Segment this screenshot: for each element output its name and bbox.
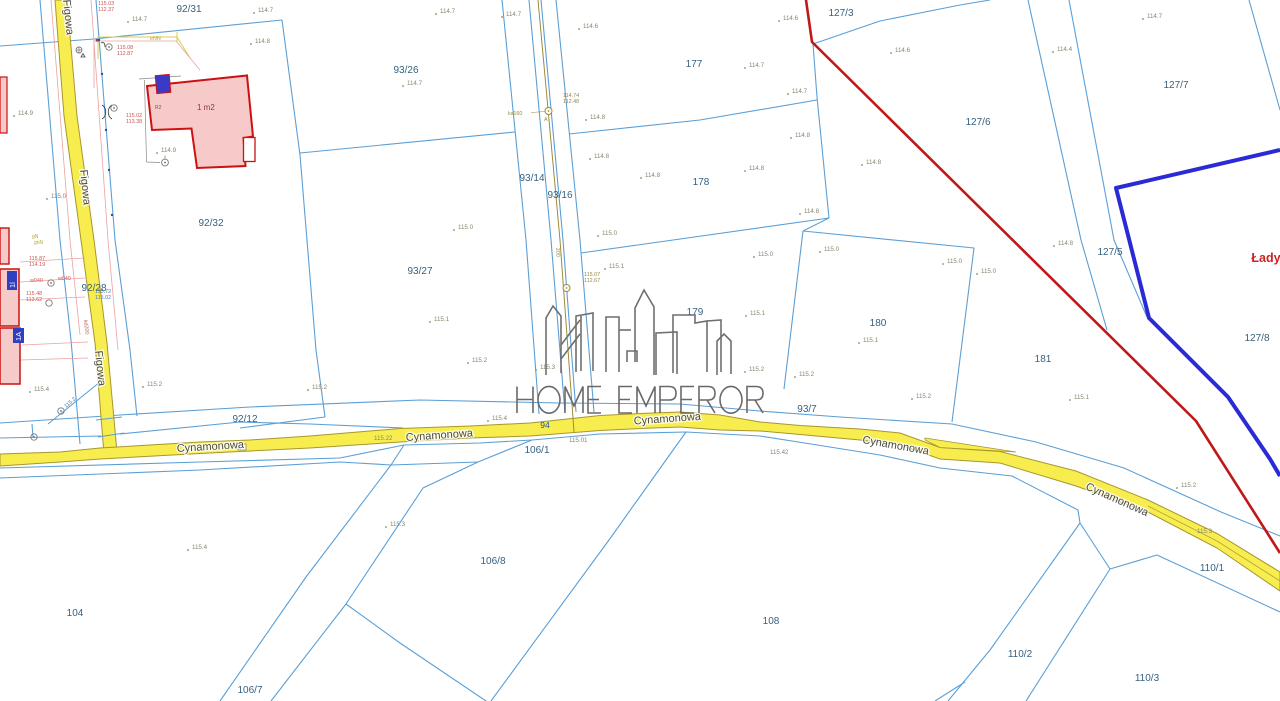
svg-text:Łady: Łady (1251, 251, 1280, 265)
svg-text:114.19: 114.19 (29, 262, 45, 268)
svg-text:110/3: 110/3 (1135, 673, 1160, 684)
svg-text:115.2: 115.2 (1181, 482, 1197, 489)
svg-text:115.0: 115.0 (51, 193, 67, 200)
svg-text:115.0: 115.0 (758, 251, 774, 258)
svg-text:177: 177 (686, 59, 703, 70)
svg-text:114.8: 114.8 (866, 159, 882, 166)
svg-text:114.8: 114.8 (749, 165, 765, 172)
svg-text:93/16: 93/16 (547, 190, 572, 201)
svg-text:115.3: 115.3 (540, 364, 556, 371)
svg-text:115.1: 115.1 (434, 316, 450, 323)
svg-text:115.3: 115.3 (390, 521, 406, 528)
svg-text:104: 104 (67, 608, 84, 619)
svg-text:114.8: 114.8 (1058, 240, 1074, 247)
svg-text:115.42: 115.42 (770, 449, 789, 456)
svg-text:115.22: 115.22 (374, 435, 393, 442)
svg-text:114.9: 114.9 (161, 147, 177, 154)
svg-text:114.7: 114.7 (792, 88, 808, 95)
svg-text:114.6: 114.6 (783, 15, 799, 22)
svg-text:114.8: 114.8 (645, 172, 661, 179)
svg-text:127/3: 127/3 (828, 8, 853, 19)
svg-text:127/8: 127/8 (1244, 333, 1269, 344)
svg-text:114.4: 114.4 (1057, 46, 1073, 53)
svg-text:114.7: 114.7 (440, 8, 456, 15)
svg-text:112.87: 112.87 (117, 51, 133, 57)
svg-text:114.8: 114.8 (590, 114, 606, 121)
svg-text:178: 178 (693, 177, 710, 188)
svg-text:115.3: 115.3 (1197, 528, 1213, 535)
svg-text:106/8: 106/8 (480, 556, 505, 567)
svg-text:115.4: 115.4 (492, 415, 508, 422)
svg-text:115.02: 115.02 (95, 295, 111, 301)
svg-text:115.2: 115.2 (916, 393, 932, 400)
svg-text:115.4: 115.4 (192, 544, 208, 551)
svg-text:127/5: 127/5 (1097, 247, 1122, 258)
svg-text:1l: 1l (8, 282, 17, 288)
svg-text:1 m2: 1 m2 (197, 103, 215, 112)
svg-text:115.0: 115.0 (981, 268, 997, 275)
svg-text:w040: w040 (57, 276, 71, 282)
svg-text:115.4: 115.4 (34, 386, 50, 393)
svg-text:114.7: 114.7 (258, 7, 274, 14)
svg-text:113.62: 113.62 (26, 297, 42, 303)
svg-text:108: 108 (763, 616, 780, 627)
svg-text:115.1: 115.1 (750, 310, 766, 317)
svg-text:181: 181 (1035, 354, 1052, 365)
svg-text:115.0: 115.0 (824, 246, 840, 253)
svg-text:114.8: 114.8 (795, 132, 811, 139)
svg-text:114.7: 114.7 (749, 62, 765, 69)
svg-text:112.67: 112.67 (584, 278, 600, 284)
svg-text:94: 94 (540, 420, 550, 430)
svg-text:93/14: 93/14 (519, 173, 544, 184)
svg-text:93/27: 93/27 (407, 266, 432, 277)
svg-text:93/7: 93/7 (797, 404, 817, 415)
svg-text:114.7: 114.7 (407, 80, 423, 87)
svg-text:106/7: 106/7 (237, 685, 262, 696)
svg-text:ks160: ks160 (508, 111, 522, 117)
svg-text:115.1: 115.1 (1074, 394, 1090, 401)
svg-text:eNN: eNN (150, 36, 161, 42)
svg-text:114.7: 114.7 (132, 16, 148, 23)
svg-text:114.7: 114.7 (506, 11, 522, 18)
svg-text:113.38: 113.38 (126, 119, 142, 125)
svg-text:R2: R2 (155, 105, 162, 111)
svg-text:w040: w040 (29, 278, 43, 284)
svg-text:115.2: 115.2 (312, 384, 328, 391)
svg-text:115.1: 115.1 (609, 263, 625, 270)
svg-text:114.6: 114.6 (583, 23, 599, 30)
svg-text:200: 200 (554, 248, 561, 257)
svg-text:112.48: 112.48 (563, 99, 579, 105)
svg-text:92/31: 92/31 (176, 4, 201, 15)
svg-text:115.1: 115.1 (863, 337, 879, 344)
svg-text:114.9: 114.9 (18, 110, 34, 117)
svg-text:gnN: gnN (34, 240, 44, 246)
svg-text:180: 180 (870, 318, 887, 329)
svg-text:A: A (544, 117, 548, 123)
svg-text:115.0: 115.0 (947, 258, 963, 265)
svg-text:127/6: 127/6 (965, 117, 990, 128)
svg-text:92/12: 92/12 (232, 414, 257, 425)
svg-text:1A: 1A (14, 332, 23, 341)
svg-text:92/32: 92/32 (198, 218, 223, 229)
svg-text:114.8: 114.8 (255, 38, 271, 45)
svg-text:115.2: 115.2 (799, 371, 815, 378)
svg-text:115.2: 115.2 (749, 366, 765, 373)
svg-text:115.2: 115.2 (472, 357, 488, 364)
svg-text:110/1: 110/1 (1200, 563, 1225, 574)
svg-text:93/26: 93/26 (393, 65, 418, 76)
svg-text:115.01: 115.01 (569, 437, 588, 444)
svg-text:115.0: 115.0 (458, 224, 474, 231)
svg-text:114.8: 114.8 (594, 153, 610, 160)
svg-text:115.2: 115.2 (147, 381, 163, 388)
svg-text:106/1: 106/1 (524, 445, 549, 456)
svg-text:127/7: 127/7 (1163, 80, 1188, 91)
svg-text:110/2: 110/2 (1008, 649, 1033, 660)
svg-text:112.37: 112.37 (98, 7, 114, 13)
svg-text:114.7: 114.7 (1147, 13, 1163, 20)
svg-text:114.6: 114.6 (895, 47, 911, 54)
svg-text:114.8: 114.8 (804, 208, 820, 215)
svg-text:115.0: 115.0 (602, 230, 618, 237)
